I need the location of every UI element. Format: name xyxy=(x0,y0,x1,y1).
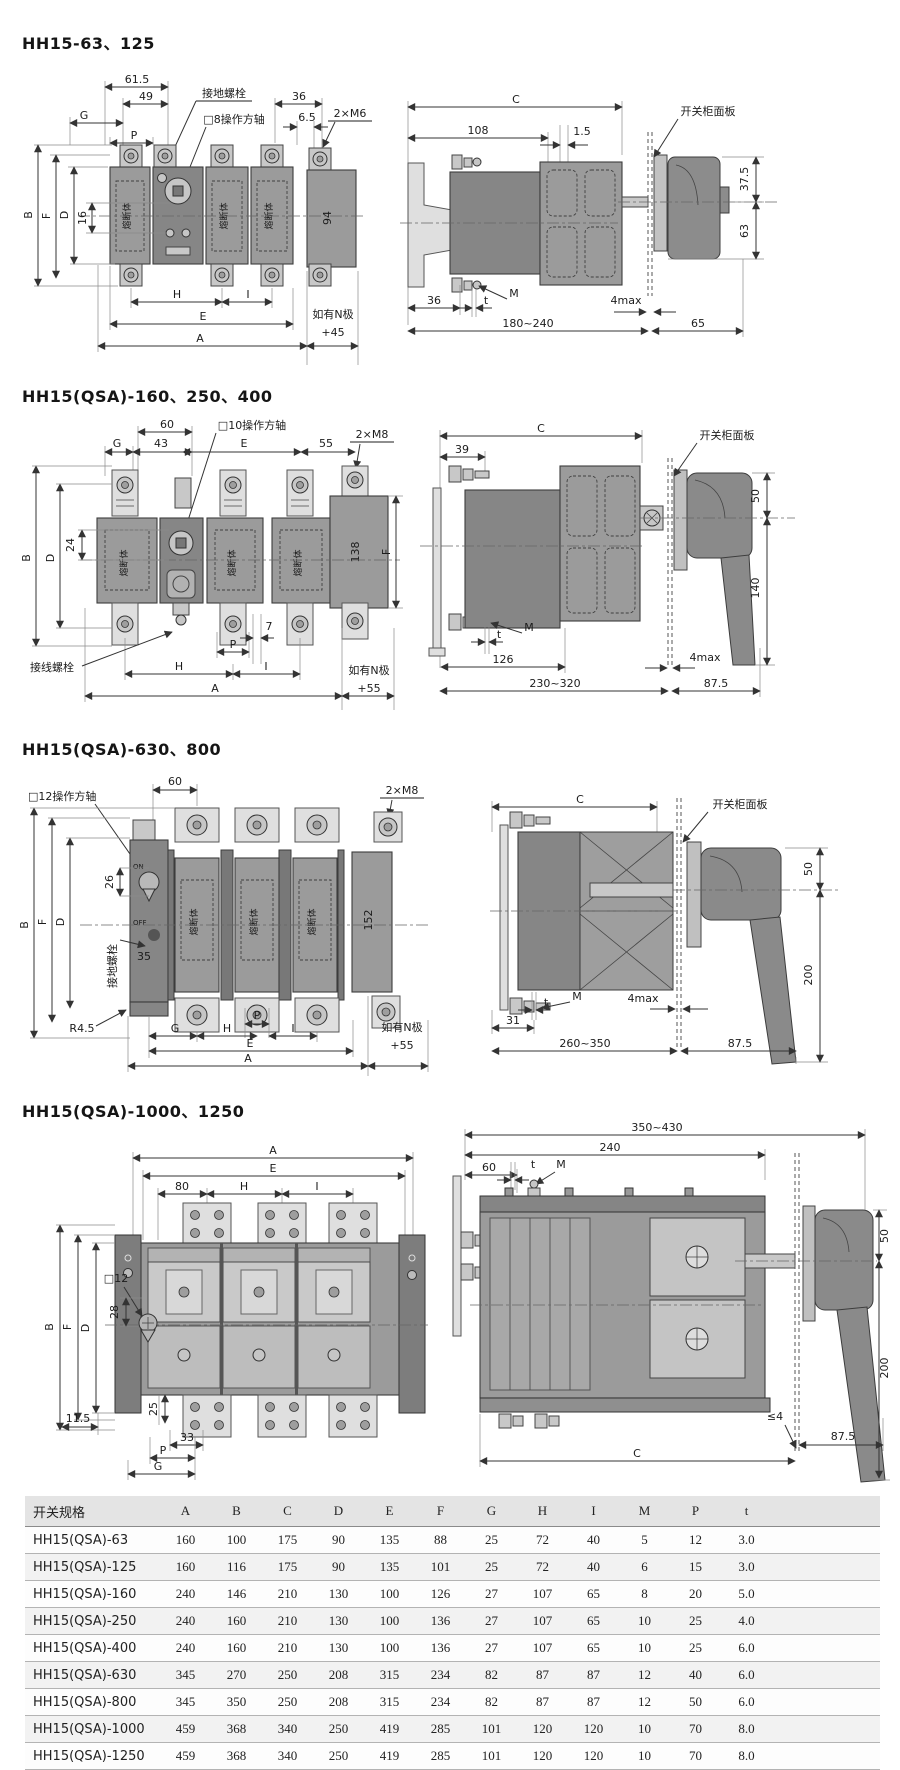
table-cell: 130 xyxy=(313,1613,364,1629)
table-cell: 6.0 xyxy=(721,1667,772,1683)
switch-body: 熔断体 熔断体 熔断体 94 xyxy=(78,145,364,286)
dim-label: G xyxy=(80,109,89,122)
dim-label: 200 xyxy=(878,1358,891,1379)
table-cell: 160 xyxy=(160,1559,211,1575)
table-cell: 90 xyxy=(313,1559,364,1575)
table-cell: 3.0 xyxy=(721,1532,772,1548)
fuse-compartment xyxy=(540,162,622,285)
table-cell: 72 xyxy=(517,1532,568,1548)
dim-label: 140 xyxy=(749,578,762,599)
part-label-cabinet-panel: 开关柜面板 xyxy=(681,104,736,118)
table-header-cell: E xyxy=(364,1503,415,1519)
front-view-hh15-160: 60 G 43 □10操作方轴 E 55 2×M8 熔断体 熔断体 熔断体 xyxy=(20,418,405,713)
table-row: HH15(QSA)-6316010017590135882572405123.0 xyxy=(25,1527,880,1554)
bolt xyxy=(452,155,462,169)
fuse-label: 熔断体 xyxy=(306,908,318,935)
table-body: HH15(QSA)-6316010017590135882572405123.0… xyxy=(25,1527,880,1770)
dim-label: D xyxy=(54,918,67,926)
off-label: OFF xyxy=(133,919,147,927)
table-header-cell: F xyxy=(415,1503,466,1519)
switch-side-body xyxy=(453,1153,885,1482)
table-cell: 70 xyxy=(670,1748,721,1764)
dim-label: E xyxy=(270,1162,277,1175)
dim-label: 60 xyxy=(168,775,182,788)
table-cell: 120 xyxy=(568,1721,619,1737)
dim-label-bolt-spec: 2×M8 xyxy=(386,784,419,797)
bolt xyxy=(510,998,522,1014)
table-cell: 8.0 xyxy=(721,1721,772,1737)
table-cell: 136 xyxy=(415,1640,466,1656)
table-cell: 12 xyxy=(670,1532,721,1548)
dim-label: M xyxy=(556,1158,566,1171)
table-header-cell: A xyxy=(160,1503,211,1519)
handle-mount-plate xyxy=(687,842,701,947)
table-cell: 12 xyxy=(619,1694,670,1710)
table-cell: 82 xyxy=(466,1667,517,1683)
dim-label: 55 xyxy=(319,437,333,450)
part-label-cabinet-panel: 开关柜面板 xyxy=(700,428,755,442)
bolt xyxy=(461,1232,473,1248)
part-label-grounding-bolt: 接地螺栓 xyxy=(202,86,246,100)
table-cell: 87 xyxy=(517,1667,568,1683)
table-cell: 459 xyxy=(160,1748,211,1764)
dim-label: E xyxy=(200,310,207,323)
table-cell: 70 xyxy=(670,1721,721,1737)
table-cell: 5 xyxy=(619,1532,670,1548)
dim-label: D xyxy=(44,554,57,562)
front-view-hh15-1000: A E 80 H I xyxy=(20,1130,430,1495)
table-row-label: HH15(QSA)-1250 xyxy=(25,1749,160,1764)
dim-label: B xyxy=(18,921,31,929)
table-cell: 340 xyxy=(262,1748,313,1764)
table-cell: 368 xyxy=(211,1748,262,1764)
table-header-cell: M xyxy=(619,1503,670,1519)
fuse-label: 熔断体 xyxy=(226,549,238,576)
dim-label: H xyxy=(240,1180,248,1193)
table-header-cell: t xyxy=(721,1503,772,1519)
table-cell: 120 xyxy=(517,1748,568,1764)
table-cell: 368 xyxy=(211,1721,262,1737)
section-title: HH15(QSA)-1000、1250 xyxy=(22,1098,244,1122)
table-cell: 210 xyxy=(262,1640,313,1656)
dim-label: P xyxy=(131,129,138,142)
dim-label: G xyxy=(171,1022,180,1035)
part-label-operating-shaft: □10操作方轴 xyxy=(218,418,286,432)
table-cell: 126 xyxy=(415,1586,466,1602)
table-row-label: HH15(QSA)-1000 xyxy=(25,1722,160,1737)
dim-label: t xyxy=(531,1158,536,1171)
side-view-hh15-160: C 39 开关柜面板 50 140 M xyxy=(405,418,895,713)
part-label-cabinet-panel: 开关柜面板 xyxy=(713,797,768,811)
on-label: ON xyxy=(133,863,144,871)
dim-label: 87.5 xyxy=(728,1037,753,1050)
fuse-label: 熔断体 xyxy=(292,549,304,576)
fuse-label: 熔断体 xyxy=(188,908,200,935)
dim-label: 25 xyxy=(147,1402,160,1416)
table-cell: 419 xyxy=(364,1748,415,1764)
dim-label: C xyxy=(576,793,584,806)
table-cell: 65 xyxy=(568,1613,619,1629)
side-view-hh15-1000: 350~430 240 60 t M xyxy=(435,1118,895,1493)
table-cell: 160 xyxy=(211,1613,262,1629)
table-header-row: 开关规格ABCDEFGHIMPt xyxy=(25,1496,880,1527)
section-title: HH15-63、125 xyxy=(22,30,155,54)
table-row-label: HH15(QSA)-125 xyxy=(25,1560,160,1575)
table-row-label: HH15(QSA)-160 xyxy=(25,1587,160,1602)
dim-label: 33 xyxy=(180,1431,194,1444)
dim-label: 4max xyxy=(690,651,721,664)
table-cell: 6.0 xyxy=(721,1640,772,1656)
table-cell: 120 xyxy=(568,1748,619,1764)
table-cell: 10 xyxy=(619,1748,670,1764)
table-header-cell: 开关规格 xyxy=(25,1502,160,1521)
table-cell: 175 xyxy=(262,1559,313,1575)
dim-label: 87.5 xyxy=(704,677,729,690)
table-cell: 101 xyxy=(466,1721,517,1737)
table-cell: 72 xyxy=(517,1559,568,1575)
table-cell: 135 xyxy=(364,1532,415,1548)
dim-label: F xyxy=(40,213,53,219)
terminal-pad xyxy=(183,1203,231,1243)
dim-label: 60 xyxy=(482,1161,496,1174)
table-cell: 65 xyxy=(568,1586,619,1602)
table-header-cell: I xyxy=(568,1503,619,1519)
table-cell: 120 xyxy=(517,1721,568,1737)
table-row-label: HH15(QSA)-400 xyxy=(25,1641,160,1656)
part-label-wiring-bolt: 接线螺栓 xyxy=(30,660,74,674)
dim-label: I xyxy=(291,1022,294,1035)
dim-label: 240 xyxy=(600,1141,621,1154)
table-cell: 285 xyxy=(415,1748,466,1764)
table-header-cell: B xyxy=(211,1503,262,1519)
dim-label: C xyxy=(512,93,520,106)
table-row: HH15(QSA)-800345350250208315234828787125… xyxy=(25,1689,880,1716)
mounting-bracket xyxy=(500,825,508,1010)
section-title: HH15(QSA)-160、250、400 xyxy=(22,383,273,407)
table-cell: 10 xyxy=(619,1721,670,1737)
table-cell: 25 xyxy=(670,1640,721,1656)
dim-label: G xyxy=(154,1460,163,1473)
note-label: +55 xyxy=(357,682,380,695)
table-cell: 210 xyxy=(262,1613,313,1629)
handle-body xyxy=(815,1210,873,1310)
dim-label: 61.5 xyxy=(125,73,150,86)
bolt xyxy=(510,812,522,828)
table-cell: 160 xyxy=(211,1640,262,1656)
table-cell: 6 xyxy=(619,1559,670,1575)
base-plate xyxy=(480,1398,770,1412)
table-cell: 136 xyxy=(415,1613,466,1629)
table-row-label: HH15(QSA)-63 xyxy=(25,1533,160,1548)
table-cell: 100 xyxy=(364,1613,415,1629)
dim-label: I xyxy=(246,288,249,301)
dim-label: M xyxy=(509,287,519,300)
dim-label: 11.5 xyxy=(66,1412,91,1425)
table-cell: 419 xyxy=(364,1721,415,1737)
table-cell: 6.0 xyxy=(721,1694,772,1710)
table-cell: 130 xyxy=(313,1586,364,1602)
dim-label: 200 xyxy=(802,965,815,986)
dim-label: 180~240 xyxy=(502,317,553,330)
dim-label: 108 xyxy=(468,124,489,137)
dim-label: 28 xyxy=(108,1305,121,1319)
dim-label: P xyxy=(160,1444,167,1457)
side-rail xyxy=(115,1235,141,1413)
dim-label: H xyxy=(173,288,181,301)
bolt xyxy=(461,1264,473,1280)
table-cell: 240 xyxy=(160,1613,211,1629)
dim-label: 260~350 xyxy=(559,1037,610,1050)
table-cell: 345 xyxy=(160,1694,211,1710)
note-label: 如有N极 xyxy=(312,307,353,321)
front-view-hh15-63: 61.5 49 G P 接地螺栓 □8操作方轴 36 6.5 2×M6 xyxy=(20,75,370,367)
table-cell: 345 xyxy=(160,1667,211,1683)
handle-mount-plate xyxy=(803,1206,815,1321)
dim-label: 94 xyxy=(321,211,334,225)
spec-table: 开关规格ABCDEFGHIMPt HH15(QSA)-6316010017590… xyxy=(25,1496,880,1770)
dim-label: F xyxy=(36,919,49,925)
table-header-cell: D xyxy=(313,1503,364,1519)
table-row: HH15(QSA)-160240146210130100126271076582… xyxy=(25,1581,880,1608)
switch-housing xyxy=(465,490,560,628)
table-cell: 10 xyxy=(619,1640,670,1656)
table-cell: 5.0 xyxy=(721,1586,772,1602)
dim-label: E xyxy=(247,1037,254,1050)
dim-label: 6.5 xyxy=(298,111,316,124)
handle-nub xyxy=(720,187,729,213)
dim-label: R4.5 xyxy=(69,1022,94,1035)
table-header-cell: H xyxy=(517,1503,568,1519)
switch-body xyxy=(105,1203,428,1437)
table-cell: 146 xyxy=(211,1586,262,1602)
dim-label: 31 xyxy=(506,1014,520,1027)
table-cell: 101 xyxy=(415,1559,466,1575)
table-cell: 101 xyxy=(466,1748,517,1764)
dim-label: t xyxy=(497,628,502,641)
table-cell: 350 xyxy=(211,1694,262,1710)
table-cell: 50 xyxy=(670,1694,721,1710)
switch-side-body xyxy=(420,458,795,668)
table-cell: 87 xyxy=(568,1667,619,1683)
table-row: HH15(QSA)-125045936834025041928510112012… xyxy=(25,1743,880,1770)
dim-label: 39 xyxy=(455,443,469,456)
fuse-label: 熔断体 xyxy=(248,908,260,935)
table-cell: 25 xyxy=(466,1532,517,1548)
table-cell: 10 xyxy=(619,1613,670,1629)
table-cell: 100 xyxy=(364,1586,415,1602)
dim-label: C xyxy=(537,422,545,435)
table-cell: 250 xyxy=(313,1721,364,1737)
table-cell: 88 xyxy=(415,1532,466,1548)
dim-label: 50 xyxy=(878,1229,891,1243)
table-cell: 100 xyxy=(364,1640,415,1656)
dim-label: M xyxy=(524,621,534,634)
table-cell: 315 xyxy=(364,1694,415,1710)
table-cell: 107 xyxy=(517,1640,568,1656)
table-cell: 27 xyxy=(466,1640,517,1656)
dim-label: C xyxy=(633,1447,641,1460)
table-cell: 135 xyxy=(364,1559,415,1575)
table-cell: 25 xyxy=(466,1559,517,1575)
table-cell: 107 xyxy=(517,1613,568,1629)
dim-label: A xyxy=(196,332,204,345)
dim-label: 1.5 xyxy=(573,125,591,138)
table-cell: 250 xyxy=(313,1748,364,1764)
note-label: +55 xyxy=(390,1039,413,1052)
table-cell: 25 xyxy=(670,1613,721,1629)
dim-label: 24 xyxy=(64,538,77,552)
dim-label: 36 xyxy=(427,294,441,307)
table-cell: 234 xyxy=(415,1667,466,1683)
dim-label: 50 xyxy=(749,489,762,503)
dim-label: B xyxy=(22,211,35,219)
mounting-bracket xyxy=(453,1176,461,1336)
table-row-label: HH15(QSA)-250 xyxy=(25,1614,160,1629)
table-cell: 210 xyxy=(262,1586,313,1602)
dim-label: B xyxy=(43,1323,56,1331)
table-cell: 208 xyxy=(313,1694,364,1710)
table-cell: 240 xyxy=(160,1640,211,1656)
table-cell: 116 xyxy=(211,1559,262,1575)
dim-label: 35 xyxy=(137,950,151,963)
dim-label: 65 xyxy=(691,317,705,330)
table-cell: 4.0 xyxy=(721,1613,772,1629)
switch-body: ON OFF 熔断体 熔断体 熔断体 152 xyxy=(80,808,428,1032)
top-rail xyxy=(480,1196,765,1212)
dim-label: E xyxy=(241,437,248,450)
dim-label-bolt-spec: 2×M8 xyxy=(356,428,389,441)
table-cell: 27 xyxy=(466,1613,517,1629)
dim-label: 7 xyxy=(266,620,273,633)
part-label-operating-shaft: □12操作方轴 xyxy=(28,789,96,803)
bolt xyxy=(449,466,461,482)
table-row-label: HH15(QSA)-630 xyxy=(25,1668,160,1683)
dim-label: G xyxy=(113,437,122,450)
note-label: 如有N极 xyxy=(381,1020,422,1034)
note-label: +45 xyxy=(321,326,344,339)
table-cell: 8 xyxy=(619,1586,670,1602)
dim-label: 43 xyxy=(154,437,168,450)
dim-label: A xyxy=(269,1144,277,1157)
dim-label: I xyxy=(264,660,267,673)
dim-label: 36 xyxy=(292,90,306,103)
handle-lever xyxy=(750,917,796,1064)
dim-label: ≤4 xyxy=(767,1410,783,1423)
dim-label-bolt-spec: 2×M6 xyxy=(334,107,367,120)
dim-label: F xyxy=(61,1324,74,1330)
table-row: HH15(QSA)-400240160210130100136271076510… xyxy=(25,1635,880,1662)
table-cell: 27 xyxy=(466,1586,517,1602)
table-cell: 250 xyxy=(262,1667,313,1683)
table-cell: 285 xyxy=(415,1721,466,1737)
bolt xyxy=(449,614,461,630)
dim-label: A xyxy=(244,1052,252,1065)
table-header-cell: P xyxy=(670,1503,721,1519)
table-cell: 100 xyxy=(211,1532,262,1548)
dim-label: 16 xyxy=(76,211,89,225)
dim-label: 50 xyxy=(802,862,815,876)
table-cell: 340 xyxy=(262,1721,313,1737)
table-cell: 130 xyxy=(313,1640,364,1656)
dim-label: 126 xyxy=(493,653,514,666)
table-cell: 20 xyxy=(670,1586,721,1602)
handle-lever xyxy=(721,555,755,665)
table-cell: 87 xyxy=(568,1694,619,1710)
part-label-operating-shaft: □8操作方轴 xyxy=(203,112,264,126)
dim-label: D xyxy=(79,1324,92,1332)
dim-label: 230~320 xyxy=(529,677,580,690)
dim-label: 4max xyxy=(628,992,659,1005)
part-label-operating-shaft: □12 xyxy=(104,1272,128,1285)
dim-label: 87.5 xyxy=(831,1430,856,1443)
table-cell: 12 xyxy=(619,1667,670,1683)
table-row: HH15(QSA)-250240160210130100136271076510… xyxy=(25,1608,880,1635)
switch-side-body xyxy=(400,132,780,296)
dim-label: 152 xyxy=(362,910,375,931)
drive-shaft xyxy=(590,883,673,897)
side-view-hh15-630: C 开关柜面板 50 200 t xyxy=(440,770,895,1080)
dim-label: 4max xyxy=(611,294,642,307)
dim-label: t xyxy=(484,294,489,307)
handle-mount-plate xyxy=(674,470,687,570)
dim-label: D xyxy=(58,211,71,219)
table-cell: 459 xyxy=(160,1721,211,1737)
front-view-hh15-630: □12操作方轴 60 2×M8 ON OFF 熔断体 熔断体 熔断体 15 xyxy=(20,770,435,1080)
table-cell: 90 xyxy=(313,1532,364,1548)
table-header-cell: C xyxy=(262,1503,313,1519)
dim-label: 49 xyxy=(139,90,153,103)
fuse-label: 熔断体 xyxy=(118,549,130,576)
off-knob xyxy=(148,929,160,941)
bolt xyxy=(452,278,462,292)
table-cell: 8.0 xyxy=(721,1748,772,1764)
side-view-hh15-63: C 108 1.5 开关柜面板 xyxy=(380,75,895,367)
dim-label: B xyxy=(20,554,33,562)
table-cell: 40 xyxy=(670,1667,721,1683)
grounding-bolt xyxy=(158,174,167,183)
table-cell: 87 xyxy=(517,1694,568,1710)
handle-body xyxy=(687,473,752,558)
switch-side-body xyxy=(490,798,840,1064)
table-cell: 175 xyxy=(262,1532,313,1548)
table-cell: 240 xyxy=(160,1586,211,1602)
table-cell: 208 xyxy=(313,1667,364,1683)
table-cell: 107 xyxy=(517,1586,568,1602)
switch-body: 熔断体 熔断体 熔断体 138 xyxy=(80,466,400,645)
table-cell: 40 xyxy=(568,1559,619,1575)
dim-label: M xyxy=(572,990,582,1003)
table-cell: 15 xyxy=(670,1559,721,1575)
handle-body xyxy=(668,157,720,259)
dim-label: 60 xyxy=(160,418,174,431)
dim-label: P xyxy=(230,638,237,651)
note-label: 如有N极 xyxy=(348,663,389,677)
dim-label: 26 xyxy=(103,875,116,889)
part-label-grounding-bolt: 接地螺栓 xyxy=(105,944,119,988)
table-row-label: HH15(QSA)-800 xyxy=(25,1695,160,1710)
datasheet-page: HH15-63、125 61.5 49 G P 接地螺栓 □8操作方轴 36 xyxy=(0,0,900,1770)
section-title: HH15(QSA)-630、800 xyxy=(22,736,221,760)
table-cell: 160 xyxy=(160,1532,211,1548)
table-cell: 40 xyxy=(568,1532,619,1548)
table-header-cell: G xyxy=(466,1503,517,1519)
table-row: HH15(QSA)-125160116175901351012572406153… xyxy=(25,1554,880,1581)
table-cell: 3.0 xyxy=(721,1559,772,1575)
dim-label: I xyxy=(315,1180,318,1193)
table-row: HH15(QSA)-100045936834025041928510112012… xyxy=(25,1716,880,1743)
dim-label: 63 xyxy=(738,224,751,238)
table-cell: 65 xyxy=(568,1640,619,1656)
